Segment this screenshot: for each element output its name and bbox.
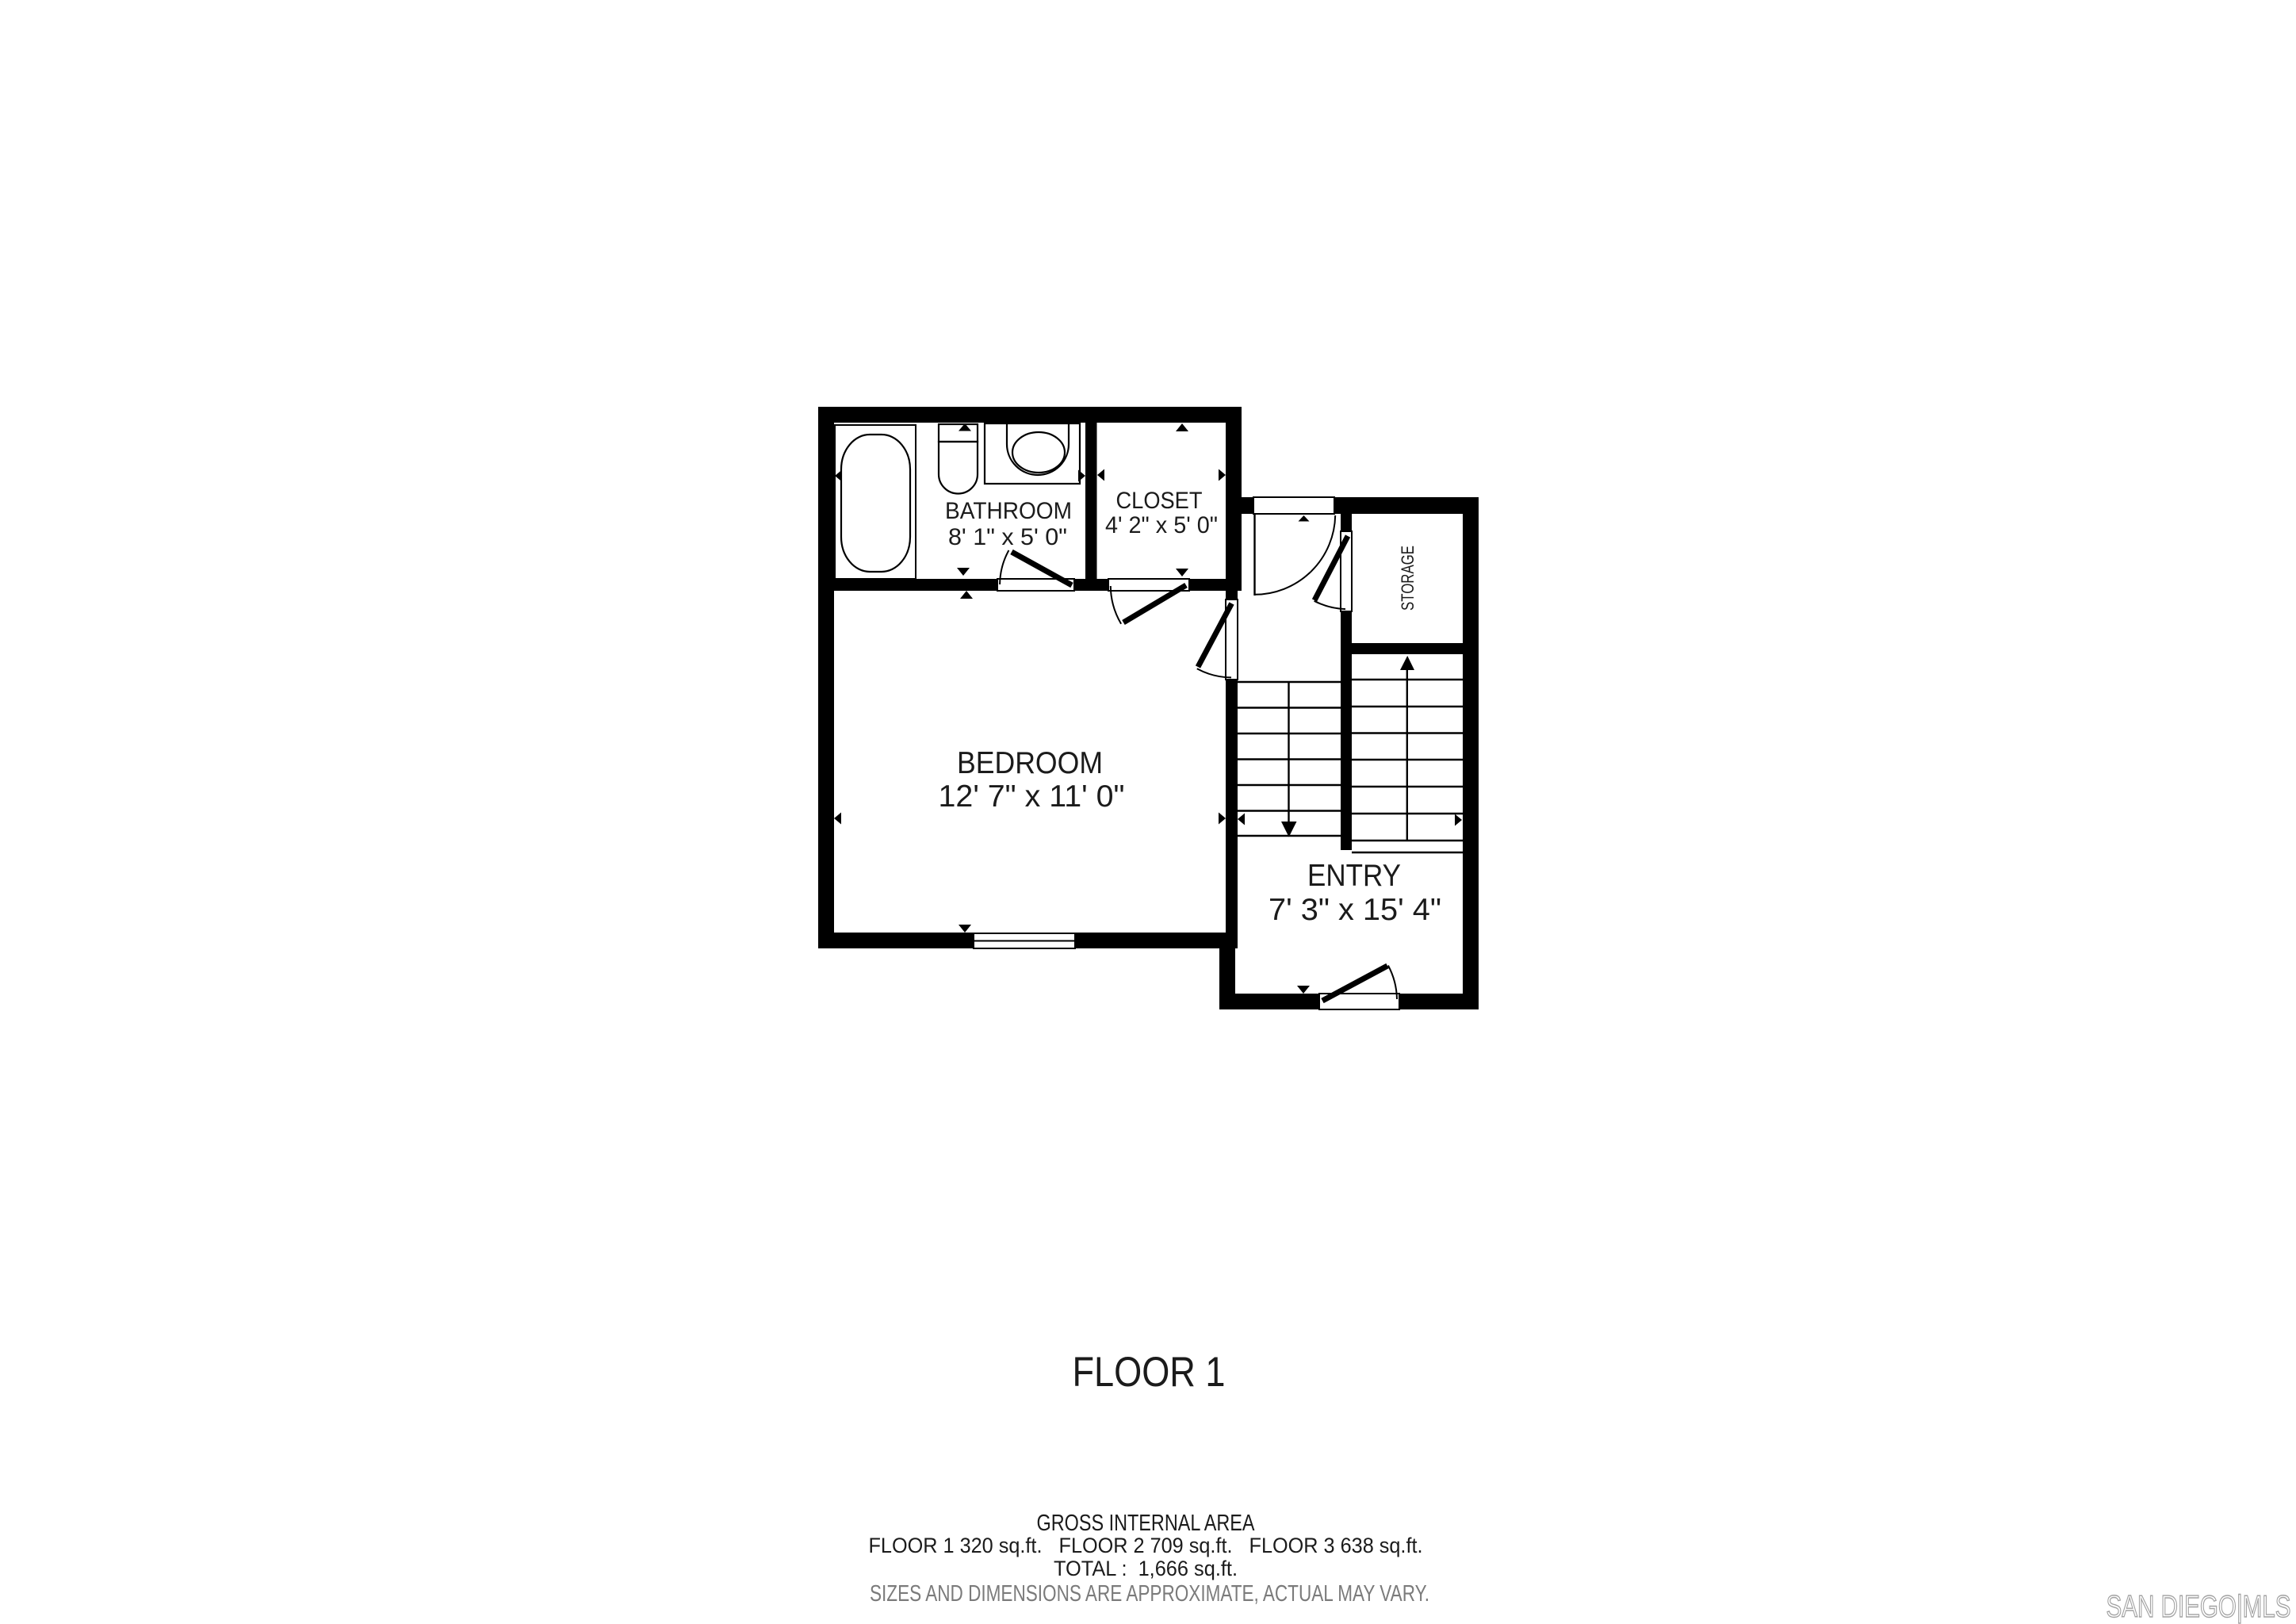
svg-text:8' 1" x 5' 0": 8' 1" x 5' 0" xyxy=(948,524,1067,550)
svg-text:FLOOR 1 320 sq.ft. FLOOR 2 7: FLOOR 1 320 sq.ft. FLOOR 2 709 sq.ft. FL… xyxy=(869,1534,1423,1557)
svg-text:7' 3" x 15' 4": 7' 3" x 15' 4" xyxy=(1269,893,1441,927)
svg-text:BEDROOM: BEDROOM xyxy=(957,746,1103,780)
svg-text:12' 7" x 11' 0": 12' 7" x 11' 0" xyxy=(939,779,1125,814)
svg-text:BATHROOM: BATHROOM xyxy=(945,498,1072,524)
svg-text:GROSS INTERNAL AREA: GROSS INTERNAL AREA xyxy=(1037,1511,1256,1536)
svg-text:SIZES AND DIMENSIONS ARE APPRO: SIZES AND DIMENSIONS ARE APPROXIMATE, AC… xyxy=(870,1581,1429,1607)
svg-text:ENTRY: ENTRY xyxy=(1307,859,1401,893)
svg-text:STORAGE: STORAGE xyxy=(1398,546,1418,611)
svg-text:CLOSET: CLOSET xyxy=(1116,488,1203,514)
svg-text:TOTAL : 1,666 sq.ft.: TOTAL : 1,666 sq.ft. xyxy=(1054,1557,1238,1580)
svg-text:SAN DIEGO|MLS: SAN DIEGO|MLS xyxy=(2107,1590,2291,1624)
svg-text:FLOOR 1: FLOOR 1 xyxy=(1073,1349,1226,1396)
svg-text:4' 2" x 5' 0": 4' 2" x 5' 0" xyxy=(1105,512,1218,538)
